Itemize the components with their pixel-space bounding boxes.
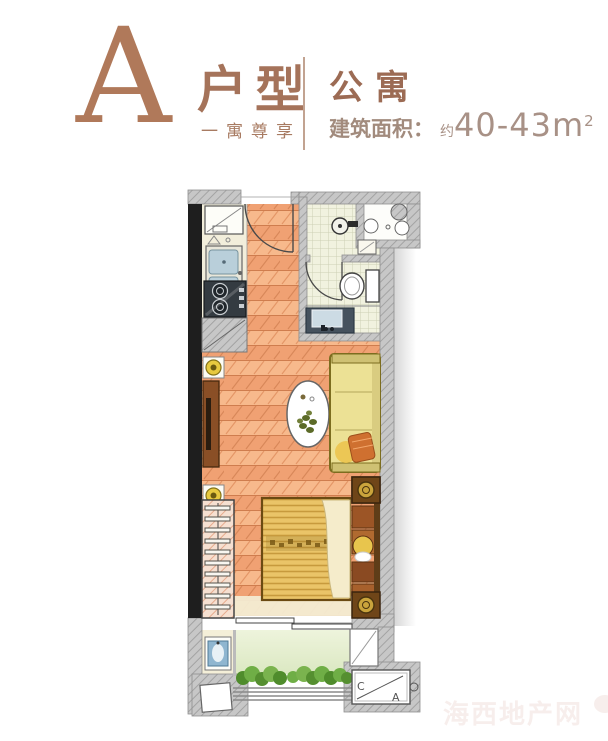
wardrobe xyxy=(202,500,234,618)
section-marker: C A xyxy=(352,670,418,704)
marker-letter-c: C xyxy=(357,680,365,693)
wall-ornament xyxy=(203,357,224,378)
watermark: 海西地产网 xyxy=(443,694,608,731)
nightstand xyxy=(352,477,380,503)
sliding-door-icon xyxy=(236,618,352,629)
wall-shadow xyxy=(394,214,416,626)
bed xyxy=(262,498,350,600)
floor-plan-page: A 户型 一寓尊享 公寓 建筑面积： 约 40-43m 2 xyxy=(0,0,608,741)
coffee-table xyxy=(287,381,329,447)
watermark-text: 海西地产网 xyxy=(443,700,583,730)
sofa xyxy=(330,354,380,472)
structural-wall xyxy=(188,204,202,618)
floor-plan-drawing: C A xyxy=(0,0,608,741)
stove-icon xyxy=(204,281,246,317)
watermark-logo-icon xyxy=(594,695,608,713)
tv-cabinet xyxy=(203,381,219,467)
kitchen xyxy=(202,206,247,352)
balcony-basin-icon xyxy=(205,637,231,670)
marker-letter-a: A xyxy=(392,691,400,704)
headboard xyxy=(374,500,380,598)
ac-platform xyxy=(200,683,232,713)
balcony-railing xyxy=(233,688,352,700)
kitchen-counter xyxy=(202,318,247,352)
shower-seat xyxy=(358,240,376,254)
nightstand xyxy=(352,592,380,618)
glass-panel xyxy=(350,629,378,666)
bed-pillows xyxy=(352,506,376,596)
vanity-sink-icon xyxy=(306,308,354,333)
